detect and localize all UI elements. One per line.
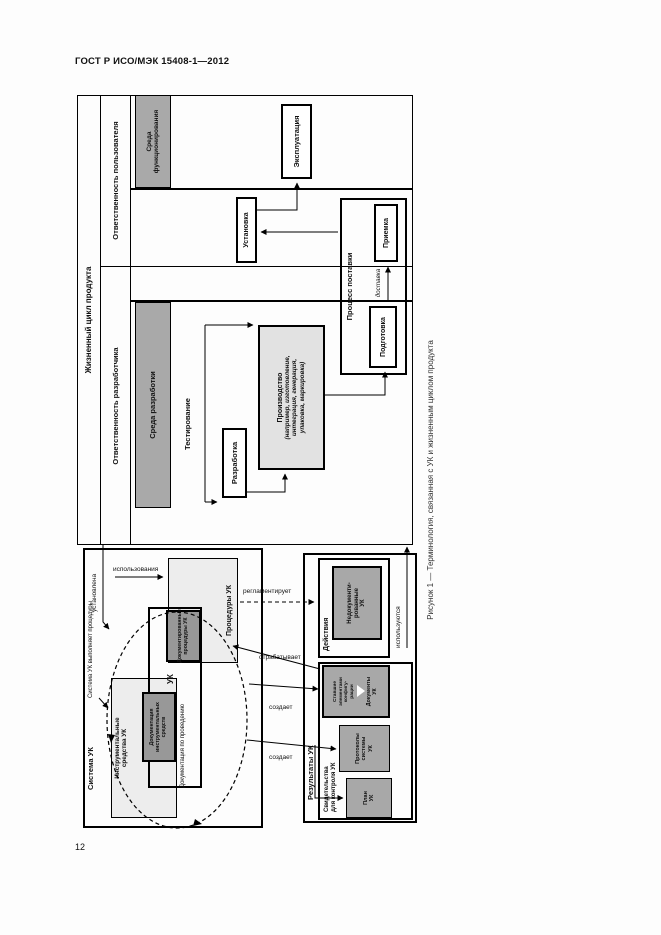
cm-procedures-label: Процедуры УК — [226, 559, 234, 662]
evidence-group-label: Свидетельства для контроля УК — [324, 763, 338, 813]
operation-label: Эксплуатация — [292, 115, 301, 167]
delivery-label: доставка — [375, 263, 382, 303]
development-label: Разработка — [230, 442, 239, 484]
arrow-label-used: используются — [395, 606, 402, 648]
arrow-label-governs: регламентирует — [243, 588, 291, 595]
cm-output-title: Результаты УК — [306, 745, 315, 800]
production-note: (например, изготовление, интеграция, ген… — [284, 356, 306, 440]
operation-box: Эксплуатация — [281, 104, 312, 179]
cm-uk-label: УК — [166, 674, 175, 684]
op-environment-label: Среда функционирования — [146, 110, 161, 173]
cm-documents-label: Документы УК — [367, 677, 379, 706]
dev-environment-label: Среда разработки — [149, 371, 158, 439]
preparation-box: Подготовка — [369, 306, 397, 368]
page-number: 12 — [75, 842, 85, 852]
documented-procedures-label: Документированные процедуры УК — [178, 609, 190, 663]
document-header: ГОСТ Р ИСО/МЭК 15408-1—2012 — [75, 56, 229, 67]
undocumented-cm-label: Недокументи- рованные УК — [347, 582, 368, 623]
transform-arrow-icon — [357, 686, 365, 698]
cm-tools-label: Инструментальные средства УК — [114, 679, 128, 817]
arrow-label-installed: установлена — [91, 574, 98, 612]
production-label: Производство — [277, 373, 284, 423]
development-box: Разработка — [222, 428, 247, 498]
preparation-label: Подготовка — [380, 317, 387, 357]
tools-documentation-box: Документация инструментальных средств — [142, 692, 176, 762]
arrow-label-creates1: создает — [269, 704, 293, 711]
arrow-label-creates2: создает — [269, 754, 293, 761]
cm-records-box: Протоколы системы УК — [339, 725, 390, 772]
documented-procedures-box: Документированные процедуры УК — [166, 610, 201, 662]
arrow-label-usage: использования — [113, 566, 158, 573]
undocumented-cm-box: Недокументи- рованные УК — [332, 566, 382, 640]
op-environment-header: Среда функционирования — [135, 95, 171, 188]
config-items-label: Ставшие элементами конфигу- рации — [333, 677, 355, 706]
production-box: Производство (например, изготовление, ин… — [258, 325, 325, 470]
user-responsibility-band: Ответственность пользователя — [101, 95, 131, 267]
testing-label: Тестирование — [183, 398, 192, 450]
developer-responsibility-band: Ответственность разработчика — [101, 267, 131, 545]
cm-plan-label: План УК — [363, 791, 376, 805]
lifecycle-title-band: Жизненный цикл продукта — [77, 95, 101, 545]
op-environment-border — [131, 188, 413, 190]
delivery-process-label: Процесс поставки — [345, 200, 354, 373]
acceptance-box: Приемка — [374, 204, 398, 262]
cm-plan-box: План УК — [346, 778, 392, 818]
lifecycle-title: Жизненный цикл продукта — [84, 267, 93, 374]
cm-system-title: Система УК — [86, 747, 95, 790]
acceptance-label: Приемка — [383, 218, 390, 248]
figure-caption: Рисунок 1 — Терминология, связанная с УК… — [426, 270, 435, 690]
user-responsibility-label: Ответственность пользователя — [111, 121, 120, 239]
cm-records-label: Протоколы системы УК — [355, 733, 374, 764]
developer-responsibility-label: Ответственность разработчика — [111, 347, 120, 464]
actions-label: Действия — [323, 618, 330, 651]
installation-box: Установка — [236, 197, 257, 263]
conduct-documentation-label: Документация по проведению — [180, 700, 187, 792]
dev-environment-header: Среда разработки — [135, 302, 171, 508]
tools-documentation-label: Документация инструментальных средств — [150, 702, 168, 752]
installation-label: Установка — [243, 212, 250, 247]
config-items-box: Ставшие элементами конфигу- рации Докуме… — [322, 665, 390, 718]
figure-rotated-canvas: Жизненный цикл продукта Ответственность … — [75, 80, 447, 880]
cm-system-callout: Система УК выполняет процедуры — [88, 634, 95, 698]
arrow-label-processes: отрабатывает — [259, 654, 301, 661]
